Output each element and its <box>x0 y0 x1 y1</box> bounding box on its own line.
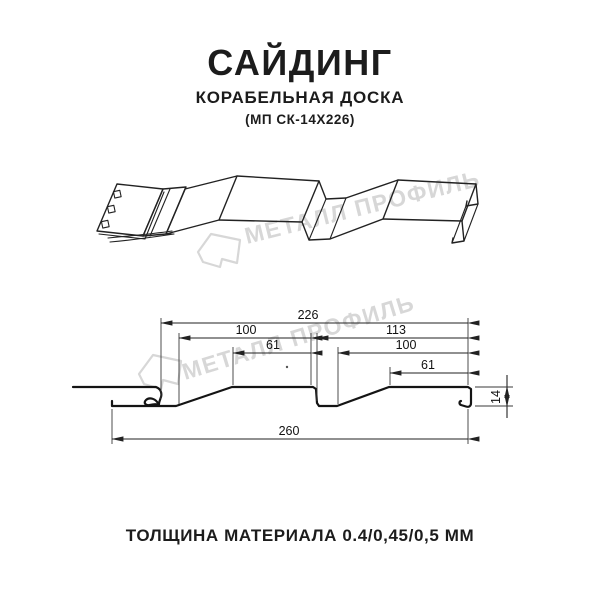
dim-left-panel-label: 100 <box>236 323 257 337</box>
watermark-top: МЕТАЛЛ ПРОФИЛЬ <box>198 165 483 267</box>
section-lock-hook <box>145 398 159 405</box>
dim-right-flat-label: 61 <box>421 358 435 372</box>
drawing-canvas: МЕТАЛЛ ПРОФИЛЬ <box>0 0 600 600</box>
dim-right-panel-inner-label: 100 <box>396 338 417 352</box>
section-profile <box>112 387 471 407</box>
watermark-text: МЕТАЛЛ ПРОФИЛЬ <box>179 289 418 385</box>
dim-total-width-label: 260 <box>279 424 300 438</box>
dim-right-panel-label: 113 <box>386 323 406 337</box>
footer-note: ТОЛЩИНА МАТЕРИАЛА 0.4/0,45/0,5 ММ <box>0 526 600 546</box>
watermark-logo-icon <box>198 234 240 267</box>
dim-overall-width-label: 226 <box>298 308 319 322</box>
section-top-flange <box>73 387 161 404</box>
watermark-logo-icon <box>139 355 181 389</box>
dim-left-flat-label: 61 <box>266 338 280 352</box>
watermark-text: МЕТАЛЛ ПРОФИЛЬ <box>242 165 483 249</box>
dim-height-label: 14 <box>489 390 503 404</box>
page-root: САЙДИНГ КОРАБЕЛЬНАЯ ДОСКА (МП СК-14Х226)… <box>0 0 600 600</box>
